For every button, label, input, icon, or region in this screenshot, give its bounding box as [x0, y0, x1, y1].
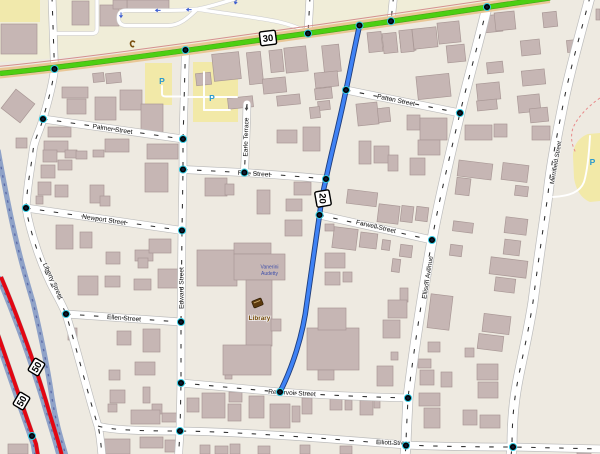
- svg-text:Vanerini: Vanerini: [261, 265, 279, 271]
- svg-text:P: P: [159, 76, 165, 86]
- svg-text:P: P: [209, 93, 215, 103]
- svg-text:20: 20: [317, 193, 328, 204]
- svg-text:P: P: [590, 157, 596, 167]
- svg-text:Edward Street: Edward Street: [179, 267, 186, 309]
- svg-text:Audetty: Audetty: [261, 271, 278, 277]
- svg-text:Library: Library: [249, 315, 271, 322]
- svg-text:30: 30: [262, 33, 274, 45]
- svg-text:Earle Terrace: Earle Terrace: [242, 117, 250, 157]
